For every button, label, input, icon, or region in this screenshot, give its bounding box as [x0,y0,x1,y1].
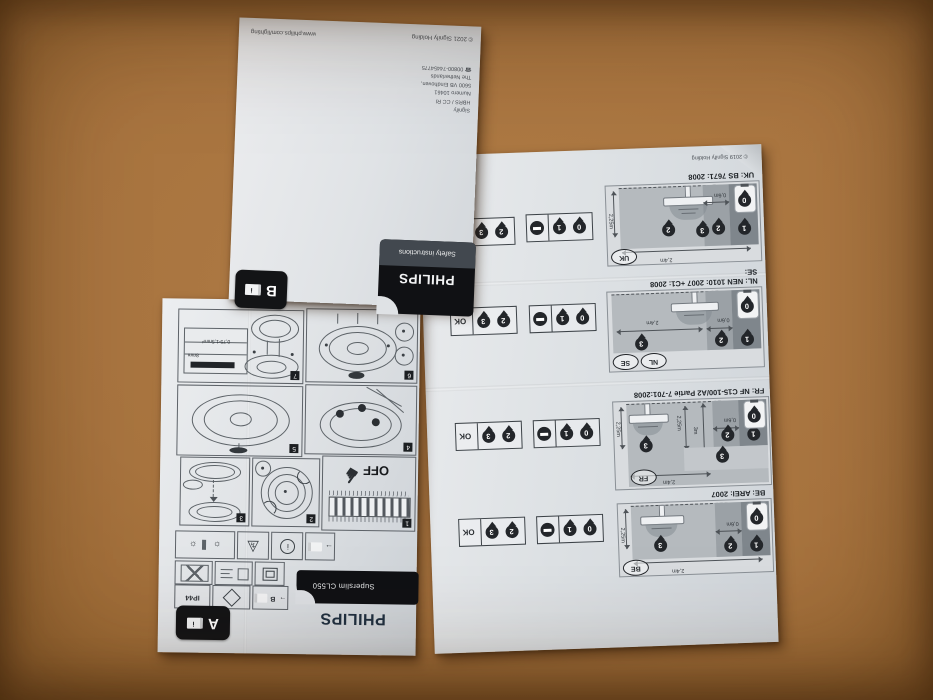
zone-2-pin: 2 [505,525,518,538]
leaflet-b-letter: B [266,281,277,298]
screw-dot [291,353,294,356]
callout-dot [358,404,366,412]
nl-width-label: 2,4m [646,319,658,325]
detail-circle [255,461,271,477]
wire-line [279,339,280,357]
ok-label: OK [459,431,471,440]
be-zones-forbidden-group: 1 0 [536,514,604,544]
zone-2-pin: 2 [502,429,515,442]
uk-zone-diagram: 2,25m 2 3 0,6m 2 1 0 2,4 [605,180,763,266]
forbidden-zone-pins: 1 0 [552,304,596,331]
fr-height2-label: 2,25m [675,415,682,430]
step-number-plate: 7 [290,371,299,380]
tap-icon [743,290,751,293]
diamond-icon [223,589,241,607]
zone-1-pin: 1 [556,312,569,325]
allowed-zone-pins: 3 2 [481,518,525,545]
ceiling-arc-inner [195,465,235,480]
be-standard-heading: BE: AREI: 2007 [711,488,765,499]
tap-icon [741,184,749,187]
allowed-zone-pins: 3 2 [473,307,517,334]
strip-length-label: 8mm [188,352,199,358]
zone-2-pin: 2 [497,314,510,327]
philips-logo: PHILIPS [320,608,386,627]
booklet-icon [255,593,268,602]
center-dot [284,490,287,493]
product-name-label: Superslim CL550 [312,581,374,591]
country-badge-uk: UK [611,249,638,266]
lamp-plate-inner [256,361,286,374]
zone-3-pin: 3 [654,539,667,552]
light-beam [633,422,663,436]
rotate-arrow [261,501,276,516]
photo-cardboard-background: © 2019 Signify Holding UK: BS 7671: 2008… [0,0,933,700]
fr-height3-label: 3m [692,427,698,435]
step-4-panel: 4 [304,384,417,456]
wire-line [267,341,268,355]
dimmer-line [221,569,233,570]
hatch-strip [328,517,408,523]
step-number-plate: 4 [403,443,412,452]
booklet-icon [307,542,321,551]
zone0-bathtub: 0 [735,185,756,212]
zone-3-pin: 3 [639,439,652,452]
anchor-detail-circle [395,346,414,365]
be-zone-diagram: 2,25m 3 0,6m 2 1 0 2,4m BE [617,498,774,577]
zone-3-pin: 3 [482,430,495,443]
phone-number: 00800-74454775 [422,64,464,72]
no-entry-icon [537,427,551,441]
dimmer-line [221,577,233,578]
no-entry-cell [537,516,560,543]
nl-bathroom-field: 2,4m 0,6m 3 2 1 0 [611,289,761,353]
callout-dot [372,418,380,426]
zone-0-pin: 0 [583,522,596,535]
nl-zones-forbidden-group: 1 0 [529,303,597,333]
wiring-spec-table: 0,75-1,5mm² 8mm [183,328,248,375]
small-part-oval [229,447,247,453]
width-measure-line [617,328,703,332]
zone-2-pin: 2 [662,223,675,236]
forbidden-zone-pins: 1 0 [549,213,593,240]
no-entry-cell [527,215,550,242]
zone-0-pin: 0 [580,426,593,439]
uk-zones-forbidden-group: 1 0 [526,212,594,242]
zone-0-pin: 0 [750,511,763,524]
allowed-zone-pins: 3 2 [478,422,522,449]
screw-dot [387,344,390,347]
safety-instructions-label: Safety instructions [399,248,456,257]
zone-1-pin: 1 [560,427,573,440]
fr-zones-forbidden-group: 1 0 [533,418,601,448]
leaflet-b-badge: i B [234,270,287,310]
screw-dot [325,343,328,346]
screw-dot [253,350,256,353]
base-plate-center [347,342,369,355]
small-part-oval [348,372,364,379]
no-entry-cell [530,306,553,333]
gap-label: 0,6m [723,416,735,422]
be-zones-ok-group: OK 3 2 [458,517,526,547]
step-3-panel: 3 [179,456,250,526]
sun-icon: ☼ [189,540,197,550]
step-number-plate: 5 [289,444,298,453]
booklet-icon: i [245,283,261,295]
breaker-switch-row [328,497,410,518]
zone-1-pin: 1 [563,523,576,536]
diffuser-center [230,412,252,426]
product-name-tab: Superslim CL550 [296,570,418,605]
no-entry-icon [540,523,554,537]
step-1-panel: OFF ☛ 1 [321,455,416,531]
zone-2-pin: 2 [495,225,508,238]
zone-0-pin: 0 [576,311,589,324]
se-standard-heading: SE: [745,267,758,276]
see-leaflet-box: → [305,532,335,560]
ceiling-dashed-line [619,185,716,189]
copyright-2021: © 2021 Signify Holding [412,33,473,41]
sun-icon: ☼ [212,540,220,550]
zone0-bathtub: 0 [747,503,768,530]
zone-3-pin: 3 [477,315,490,328]
fr-zones-ok-group: OK 3 2 [455,421,523,451]
ok-cell: OK [456,423,479,450]
brand-wordmark-area: PHILIPS [378,269,475,291]
no-cover-warning-box [174,560,212,585]
height-measure-line [613,191,616,237]
forbidden-zone-pins: 1 0 [556,419,600,446]
brand-wordmark-area: PHILIPS [298,608,408,628]
country-badge-fr: FR [630,469,657,486]
booklet-icon: i [187,617,203,628]
no-entry-icon [533,312,547,326]
step-number-plate: 3 [236,513,245,522]
height-measure-line [625,509,627,549]
arrow-icon: → [324,542,332,551]
dimmer-line [221,573,230,574]
be-width-label: 2,4m [672,567,684,573]
zone0-bathtub: 0 [744,401,765,428]
allowed-zone-pins: 3 2 [471,218,515,245]
ceiling-rose-inner [259,320,291,338]
step-7-panel: 0,75-1,5mm² 8mm 7 [177,308,304,384]
height2-measure-line [684,406,687,450]
ceiling-dashed-line [626,401,721,405]
page-corner-curve [295,590,315,604]
stripped-wire-graphic [191,362,235,369]
screw-detail-circle [395,322,414,341]
step-2-panel: 2 [251,457,320,527]
country-badge-be: BE [623,559,650,576]
step-number-plate: 1 [402,519,411,528]
zone-3-pin: 3 [475,226,488,239]
page-corner-curve [376,296,399,315]
zone-3-pin: 3 [635,337,648,350]
zone-0-pin: 0 [747,409,760,422]
fr-zone-diagram: 2,25m 3 2,25m 3m 0,6m 2 1 0 [612,396,772,490]
ok-cell: OK [459,519,482,546]
phone-icon: ☎ [465,65,472,71]
off-label: OFF [363,463,389,478]
tool-icon [202,540,206,550]
forbidden-zone-pins: 1 0 [559,515,603,542]
ceiling-dashed-line [611,291,718,296]
tap-icon [753,501,761,504]
drop-dashed-line [213,480,214,497]
gap-label: 0,6m [726,520,738,526]
zone-0-pin: 0 [741,300,754,313]
zone-3-pin: 3 [485,526,498,539]
fr-upper-zone3-region: 3 [684,445,769,471]
ceiling-dashed-line [631,503,728,507]
leaflet-b-letter: B [271,594,276,601]
fr-width-label: 2,4m [663,478,675,484]
step-5-panel: 5 [176,384,303,457]
class-ii-inner-square [266,571,275,578]
dimmer-box-icon [238,568,249,580]
zone-1-pin: 1 [553,221,566,234]
nl-se-zone-diagram: 2,4m 0,6m 3 2 1 0 SE NL [606,286,765,372]
see-leaflet-b-box: B → [252,586,288,611]
website-label: www.philips.com/lighting [251,28,316,36]
step-number-plate: 2 [306,514,315,523]
class-ii-box [254,562,284,586]
ip44-label: IP44 [185,593,200,600]
safety-cover-tab: Safety instructions PHILIPS [377,239,476,317]
zone-0-pin: 0 [738,194,751,207]
ok-label: OK [462,527,474,536]
fr-bathroom-field: 3 2,25m 3m 0,6m 2 1 0 3 2,4m [626,399,769,487]
manual-leaflet-paper: 0,75-1,5mm² 8mm 7 [158,298,421,656]
safety-leaflet-paper: www.philips.com/lighting © 2021 Signify … [229,17,482,308]
height-measure-line [620,407,622,449]
ok-label: OK [454,317,466,326]
cable-line [377,314,378,324]
be-bathroom-field: 3 0,6m 2 1 0 [631,501,771,560]
lamp-type-icons-box: ☼ ☼ [175,530,235,559]
philips-logo: PHILIPS [398,271,455,288]
no-entry-cell [534,420,557,447]
step-number-plate: 6 [404,371,413,380]
arrow-icon: → [279,594,286,601]
address-block: Signify HBRS / CC RI Numero 10461 5600 V… [388,61,472,114]
zone-3-pin: 3 [716,449,729,462]
cable-line [337,314,338,324]
lightning-icon: ↯ [250,541,256,549]
tab-title-band: Safety instructions [379,239,476,269]
leaflet-a-badge: i A [176,605,230,640]
country-badge-se: SE [612,354,639,371]
callout-dot [336,410,344,418]
info-circle-icon: i [280,539,295,554]
tap-icon [750,399,758,402]
lamp-base-inner [196,506,232,519]
cable-line [357,313,358,324]
zone-0-pin: 0 [573,220,586,233]
uk-width-label: 2,4m [660,256,672,262]
gap-label: 0,6m [714,191,726,197]
country-badge-nl: NL [640,353,667,370]
leaflet-a-letter: A [208,614,219,631]
class-ii-outer-square [263,568,278,581]
pointing-hand-icon: ☛ [335,461,366,490]
zone0-bathtub: 0 [737,291,758,318]
gap-label: 0,6m [717,316,729,322]
dimmer-icons-box [214,561,252,586]
read-instructions-box: i [271,532,303,560]
electric-shock-warning-box: ▽ ↯ [237,531,269,559]
crossed-box-icon [181,564,209,581]
wire-spec-label: 0,75-1,5mm² [202,338,230,344]
uk-bathroom-field: 2 3 0,6m 2 1 0 [619,183,759,249]
no-entry-icon [530,221,544,235]
light-beam [669,204,708,220]
small-oval [183,480,203,490]
step-6-panel: 6 [305,308,418,384]
